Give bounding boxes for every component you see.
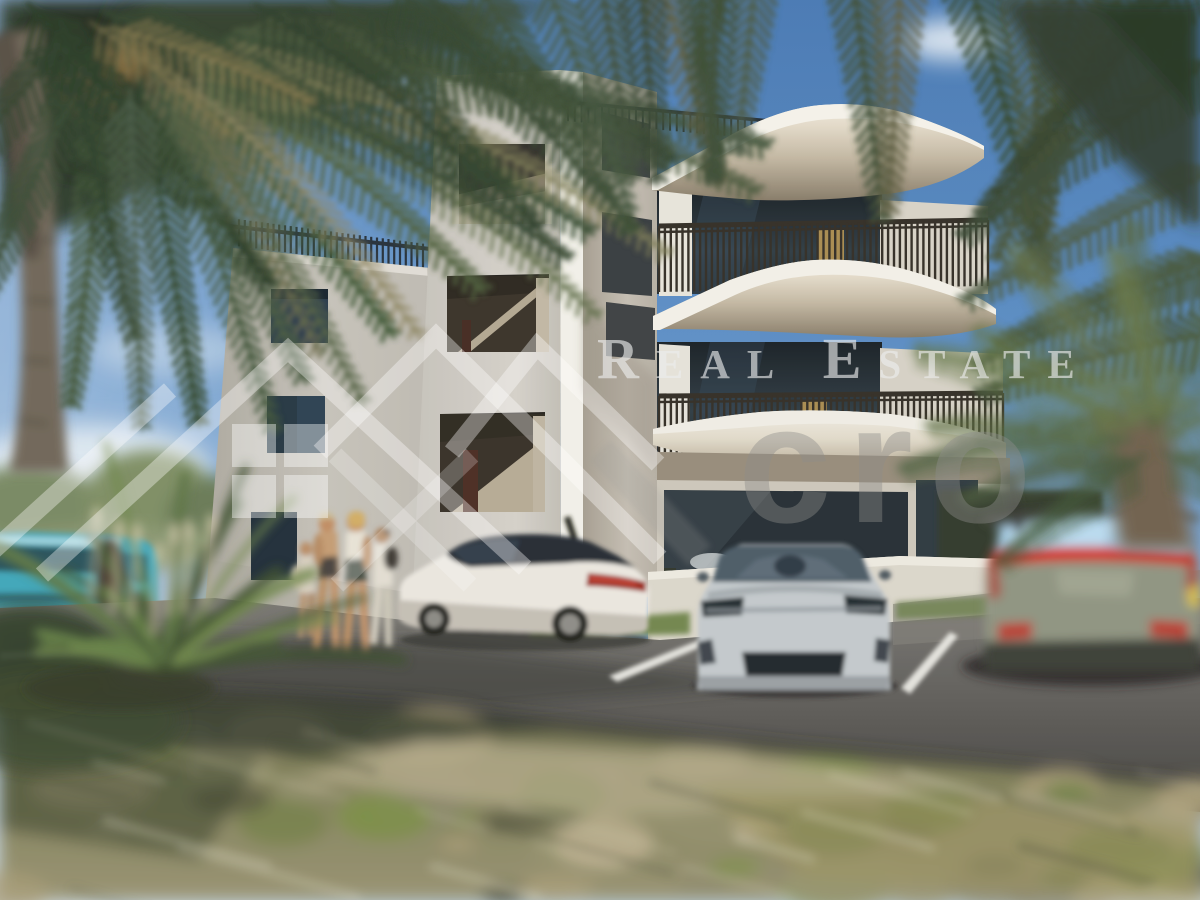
svg-text:cro: cro: [738, 370, 1047, 558]
